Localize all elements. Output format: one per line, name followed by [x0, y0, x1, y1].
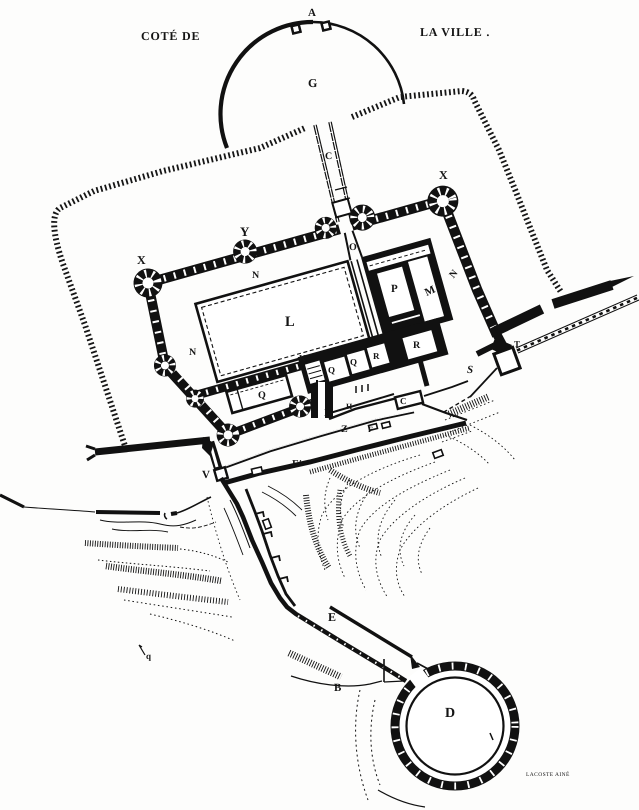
svg-text:L: L	[285, 314, 295, 330]
svg-text:LACOSTE AINÉ: LACOSTE AINÉ	[526, 771, 570, 778]
svg-text:C: C	[325, 151, 332, 162]
svg-text:LA VILLE .: LA VILLE .	[420, 25, 490, 39]
svg-text:E′: E′	[292, 459, 302, 470]
svg-text:R: R	[413, 340, 421, 351]
svg-text:N: N	[252, 270, 260, 281]
svg-text:Z: Z	[341, 424, 348, 435]
svg-text:Q: Q	[328, 365, 335, 375]
svg-text:Q: Q	[258, 390, 266, 401]
svg-text:Q: Q	[350, 357, 357, 367]
svg-text:H: H	[346, 402, 353, 411]
svg-text:COTÉ DE: COTÉ DE	[141, 29, 200, 43]
svg-text:O: O	[349, 242, 357, 253]
svg-text:R: R	[373, 351, 380, 361]
svg-text:X: X	[439, 168, 448, 182]
svg-text:q: q	[146, 651, 151, 661]
svg-text:B: B	[334, 682, 342, 694]
svg-text:N: N	[189, 347, 197, 358]
svg-text:S: S	[467, 364, 473, 376]
svg-text:Y: Y	[240, 224, 250, 239]
svg-text:C: C	[400, 396, 407, 406]
svg-text:X: X	[137, 253, 146, 267]
svg-text:V: V	[202, 469, 210, 481]
svg-text:G: G	[308, 76, 317, 90]
svg-text:P: P	[391, 283, 398, 295]
svg-text:K: K	[299, 353, 306, 363]
svg-text:I: I	[324, 408, 328, 419]
svg-text:E: E	[328, 610, 336, 624]
svg-text:F: F	[368, 425, 373, 434]
svg-text:D: D	[445, 706, 455, 721]
svg-text:A: A	[308, 7, 316, 19]
